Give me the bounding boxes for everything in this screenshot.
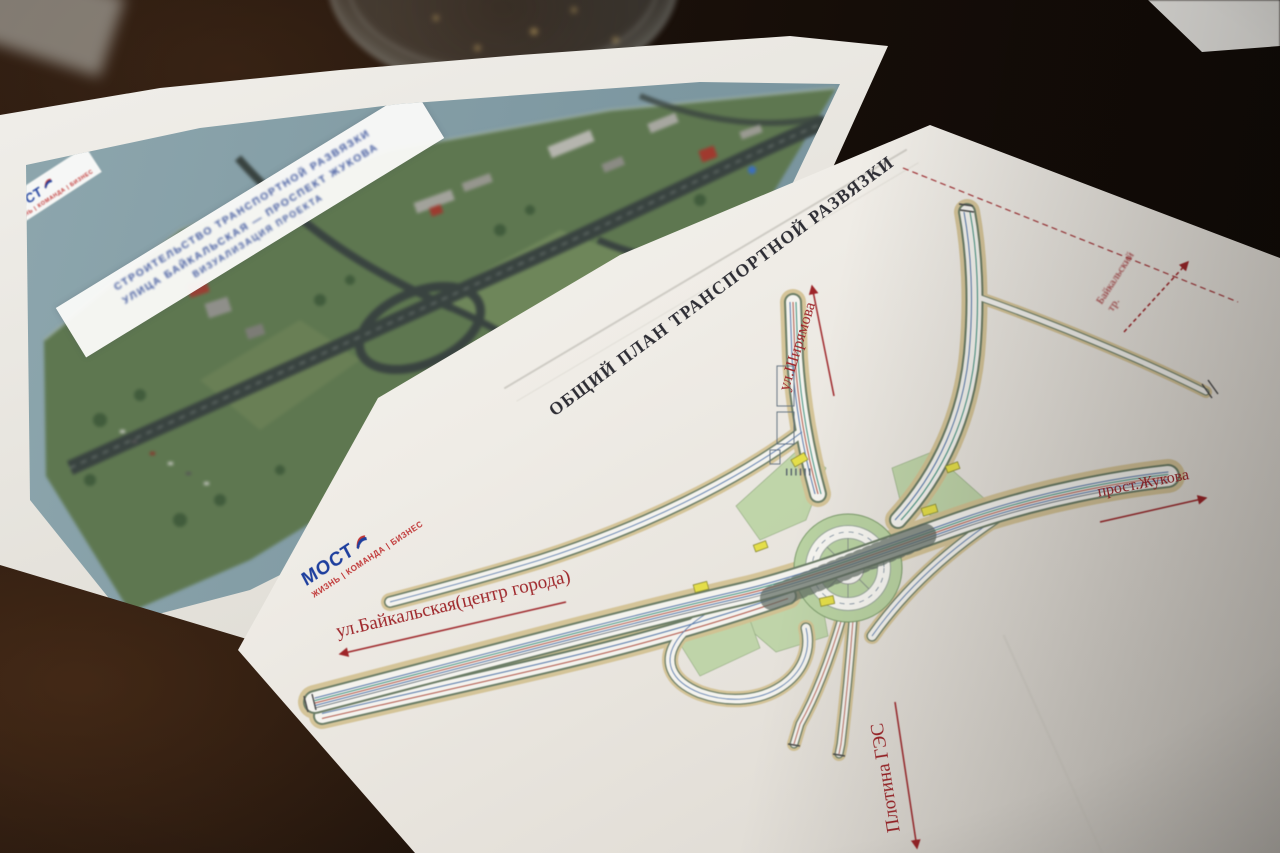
arrow-zhukova [1100, 498, 1206, 522]
glass-sparkle [475, 46, 480, 50]
glass-sparkle [531, 29, 537, 34]
glass-sparkle [613, 38, 618, 42]
glass-sparkle [572, 8, 576, 12]
photo-scene: СТРОИТЕЛЬСТВО ТРАНСПОРТНОЙ РАЗВЯЗКИ УЛИЦ… [0, 0, 1280, 853]
arrow-shiryamova [812, 286, 834, 396]
glass-sparkle [434, 16, 438, 20]
